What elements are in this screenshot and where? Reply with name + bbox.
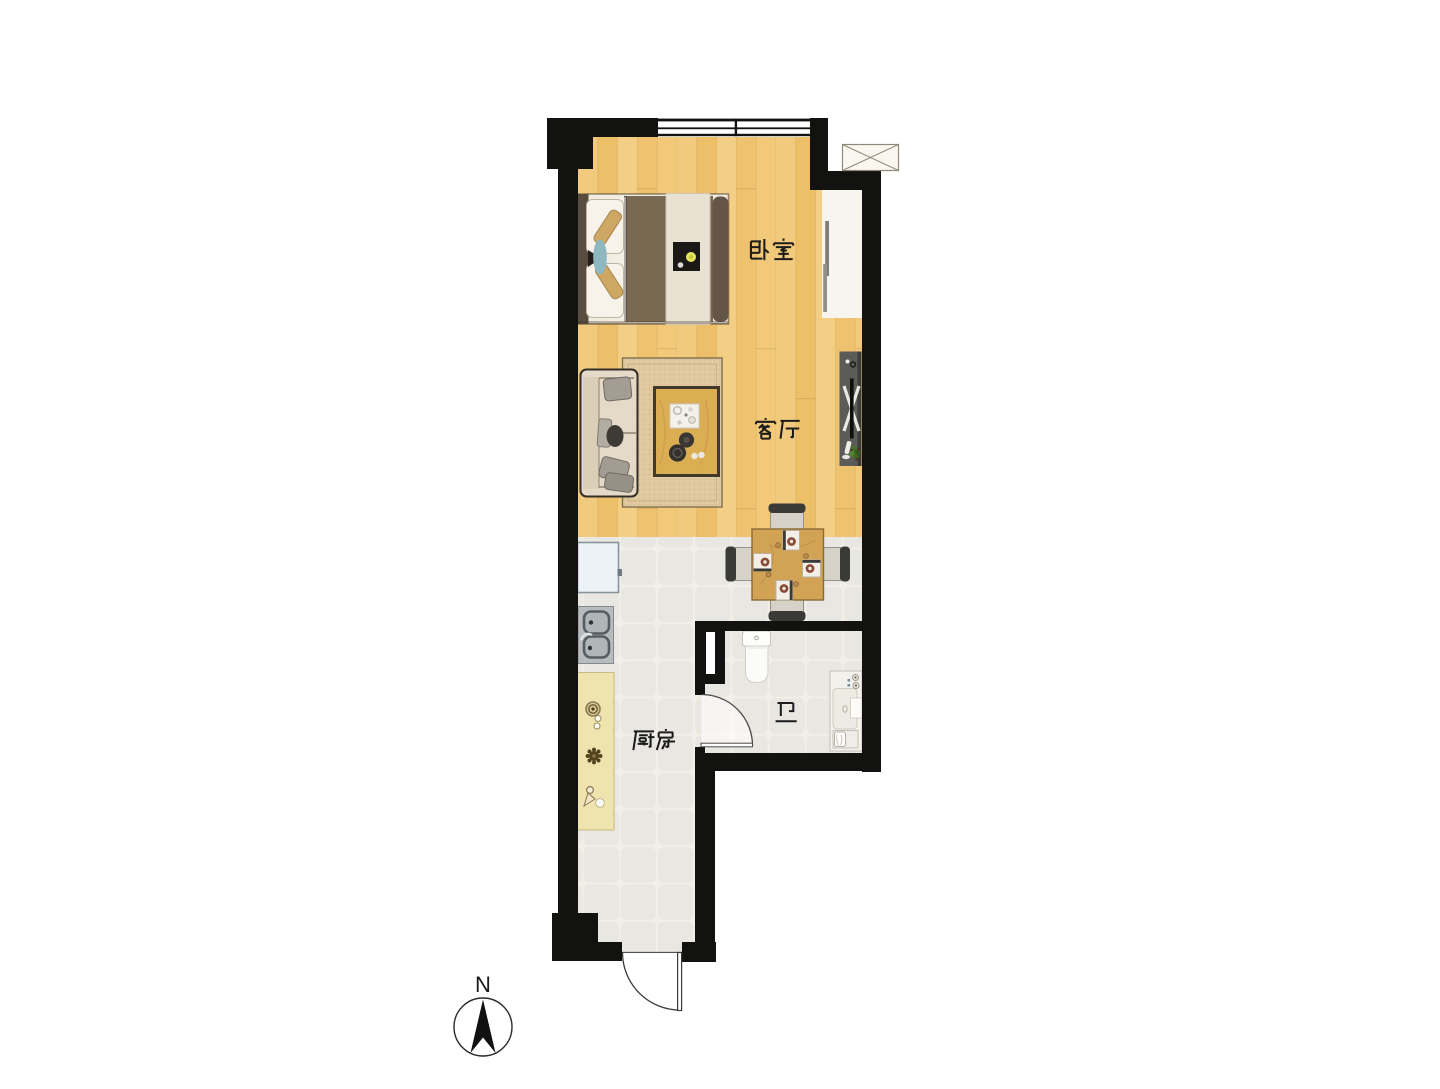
svg-text:N: N	[475, 972, 491, 997]
